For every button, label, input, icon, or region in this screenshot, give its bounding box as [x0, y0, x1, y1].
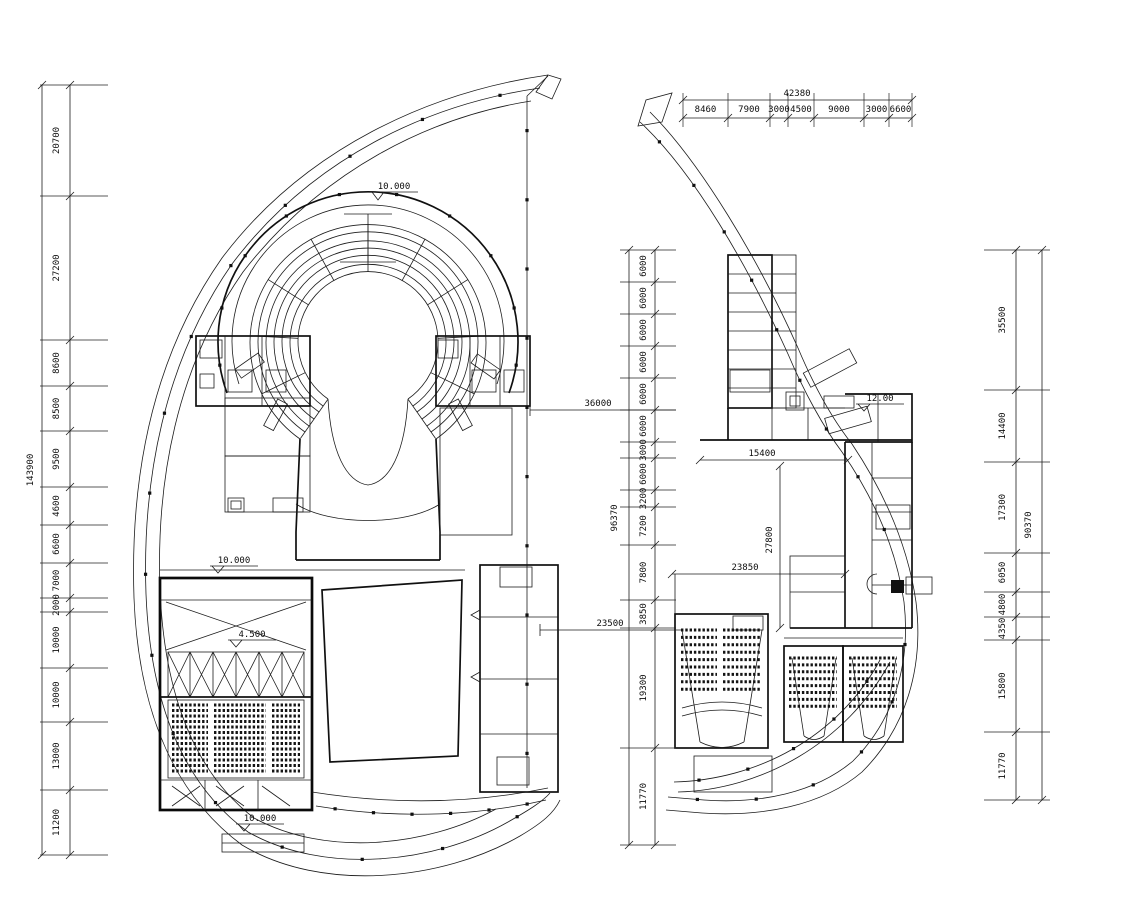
dim-label: 35500 — [998, 306, 1008, 333]
joint-zigzag — [471, 610, 480, 682]
dim-label: 6000 — [639, 287, 649, 309]
svg-text:10.000: 10.000 — [218, 556, 251, 566]
dim-label: 7900 — [738, 105, 760, 115]
aisle-stair — [235, 353, 264, 378]
floor-plan-canvas[interactable]: 36000 23500 15400 23850 27800 10.000 10.… — [0, 0, 1139, 908]
svg-text:10.000: 10.000 — [244, 814, 277, 824]
dim-label: 3200 — [639, 488, 649, 510]
ramp-stair — [803, 349, 856, 388]
dim-label: 2000 — [52, 594, 62, 616]
dim-label: 27200 — [52, 254, 62, 281]
svg-text:4.500: 4.500 — [238, 630, 265, 640]
elevation-marker: 12.00 — [856, 394, 904, 411]
dim-label: 10000 — [52, 626, 62, 653]
lobby-stairs — [172, 786, 290, 806]
dim-label: 20700 — [52, 127, 62, 154]
dim-label: 4600 — [52, 495, 62, 517]
dim-label: 6000 — [639, 383, 649, 405]
dim-total-label: 90370 — [1024, 511, 1034, 538]
canopy-outer-curve — [134, 75, 560, 876]
dim-label: 7800 — [639, 562, 649, 584]
dim-label: 14400 — [998, 412, 1008, 439]
elevation-marker: 4.500 — [228, 630, 276, 647]
dim-label: 11200 — [52, 809, 62, 836]
corridor-rooms — [728, 255, 804, 410]
canopy-tip-right — [638, 93, 672, 126]
side-rooms-left — [196, 336, 310, 406]
dim-label: 9000 — [828, 105, 850, 115]
elevation-marker: 10.000 — [210, 556, 258, 573]
orchestra-pit — [328, 399, 408, 485]
amphitheater — [218, 192, 518, 560]
dim-23500: 23500 — [596, 619, 623, 629]
dim-label: 8600 — [52, 352, 62, 374]
dim-label: 17300 — [998, 494, 1008, 521]
dim-label: 4800 — [998, 594, 1008, 616]
dim-label: 6000 — [639, 463, 649, 485]
dim-label: 4500 — [790, 105, 812, 115]
dim-label: 15800 — [998, 672, 1008, 699]
canopy-mid-curve — [146, 88, 550, 859]
dim-label: 11770 — [639, 783, 649, 810]
seating-rows — [172, 630, 897, 771]
main-theater — [160, 578, 312, 810]
dim-36000: 36000 — [584, 399, 611, 409]
dim-label: 4350 — [998, 618, 1008, 640]
dim-23850: 23850 — [731, 563, 758, 573]
rehearsal-hall — [322, 580, 462, 762]
stage-bracing — [166, 602, 306, 650]
dim-27800: 27800 — [765, 526, 775, 553]
leader-dimensions: 36000 23500 15400 23850 27800 — [530, 399, 852, 636]
dim-label: 3000 — [639, 439, 649, 461]
dim-label: 11770 — [998, 752, 1008, 779]
dim-label: 8500 — [52, 398, 62, 420]
dim-label: 6000 — [639, 351, 649, 373]
right-strip-rooms — [471, 565, 558, 792]
svg-text:10.000: 10.000 — [378, 182, 411, 192]
cad-drawing-page: 36000 23500 15400 23850 27800 10.000 10.… — [0, 0, 1139, 908]
dim-label: 3850 — [639, 603, 649, 625]
dim-label: 7000 — [52, 570, 62, 592]
dim-label: 3000 — [866, 105, 888, 115]
dim-label: 9500 — [52, 448, 62, 470]
svg-text:12.00: 12.00 — [866, 394, 893, 404]
dim-label: 6600 — [890, 105, 912, 115]
dim-label: 6000 — [639, 319, 649, 341]
dim-label: 6000 — [639, 415, 649, 437]
dim-label: 10000 — [52, 681, 62, 708]
landing-stair — [824, 396, 854, 408]
dim-label: 13000 — [52, 742, 62, 769]
dim-label: 6050 — [998, 562, 1008, 584]
column-dots — [144, 94, 907, 861]
dim-label: 6600 — [52, 533, 62, 555]
stage-center-mark — [340, 214, 396, 262]
dim-label: 6000 — [639, 255, 649, 277]
dim-label: 7200 — [639, 515, 649, 537]
dim-total-label: 96370 — [610, 504, 620, 531]
canopy-tip — [536, 75, 561, 99]
dim-total-label: 42380 — [783, 89, 810, 99]
dim-total-label: 143900 — [26, 454, 36, 487]
dim-label: 19300 — [639, 674, 649, 701]
dim-label: 3000 — [768, 105, 790, 115]
dim-label: 8460 — [695, 105, 717, 115]
stage-front-curve — [296, 504, 440, 521]
mid-block — [700, 394, 932, 628]
left-plan — [134, 75, 561, 876]
dim-15400: 15400 — [748, 449, 775, 459]
stage-walls — [296, 439, 440, 560]
